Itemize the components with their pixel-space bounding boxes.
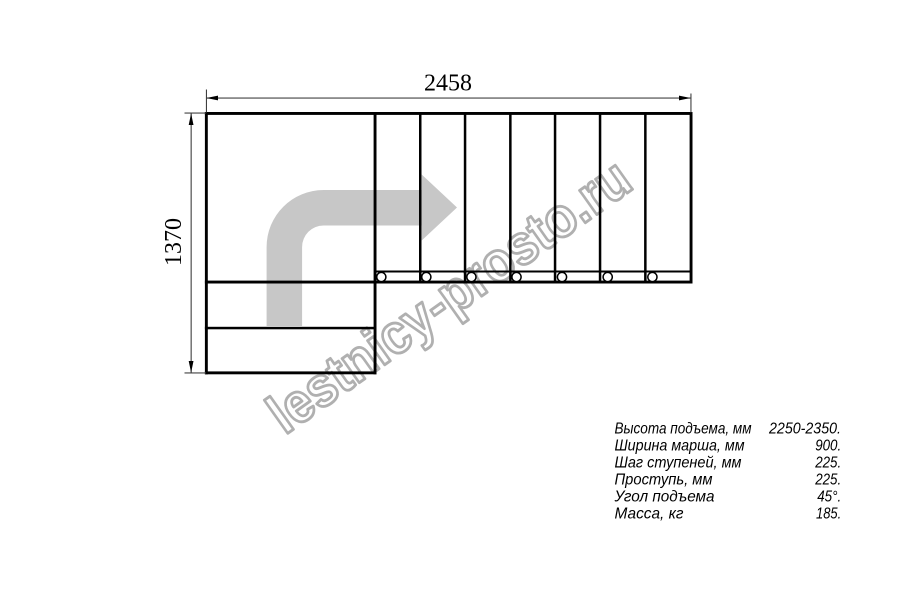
svg-text:Масса, кг: Масса, кг <box>615 505 684 522</box>
svg-text:185.: 185. <box>816 505 841 522</box>
svg-text:2458: 2458 <box>424 71 472 97</box>
svg-text:225.: 225. <box>814 471 841 488</box>
svg-text:1370: 1370 <box>161 218 187 266</box>
svg-text:Ширина марша, мм: Ширина марша, мм <box>615 438 745 455</box>
svg-text:Проступь, мм: Проступь, мм <box>615 471 713 488</box>
svg-text:lestnicy-prosto.ru: lestnicy-prosto.ru <box>255 146 642 446</box>
svg-text:45°.: 45°. <box>817 488 841 505</box>
svg-text:Угол подъема: Угол подъема <box>614 488 715 505</box>
svg-text:Шаг ступеней, мм: Шаг ступеней, мм <box>615 454 742 471</box>
svg-text:2250-2350.: 2250-2350. <box>768 421 841 438</box>
svg-text:900.: 900. <box>815 438 841 455</box>
svg-text:225.: 225. <box>814 454 841 471</box>
svg-text:Высота подъема, мм: Высота подъема, мм <box>615 421 752 438</box>
